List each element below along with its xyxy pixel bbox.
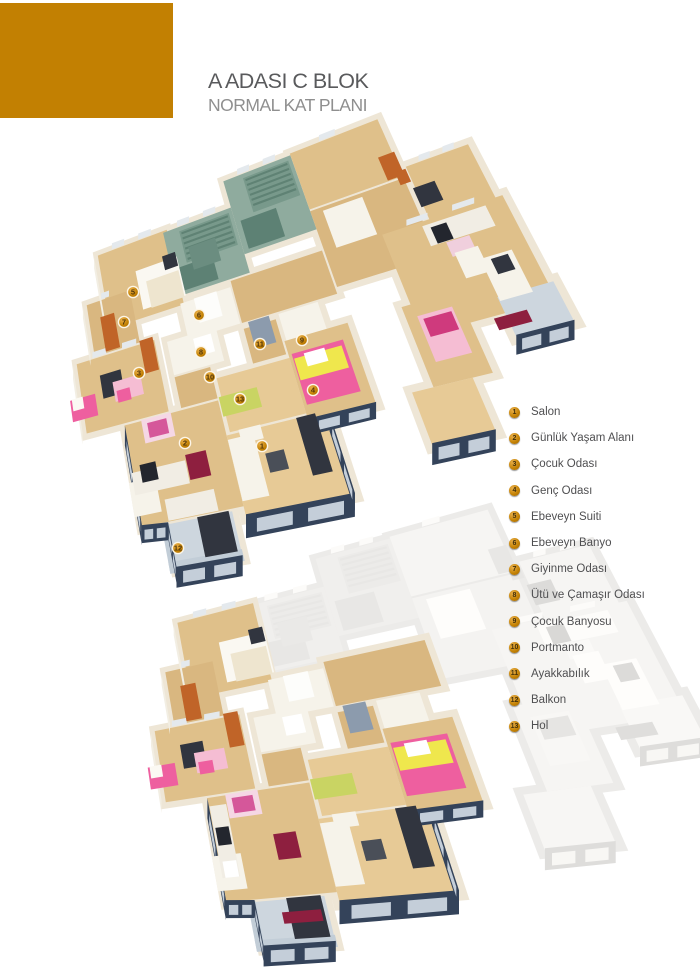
svg-text:9: 9 — [300, 336, 304, 345]
svg-text:12: 12 — [174, 544, 182, 553]
svg-text:1: 1 — [260, 442, 264, 451]
svg-text:7: 7 — [122, 318, 126, 327]
svg-text:5: 5 — [131, 288, 135, 297]
svg-text:6: 6 — [197, 311, 201, 320]
svg-text:11: 11 — [256, 340, 264, 349]
svg-text:8: 8 — [199, 348, 203, 357]
svg-text:10: 10 — [206, 373, 214, 382]
svg-text:2: 2 — [183, 439, 187, 448]
svg-text:3: 3 — [137, 369, 141, 378]
svg-text:13: 13 — [236, 395, 244, 404]
